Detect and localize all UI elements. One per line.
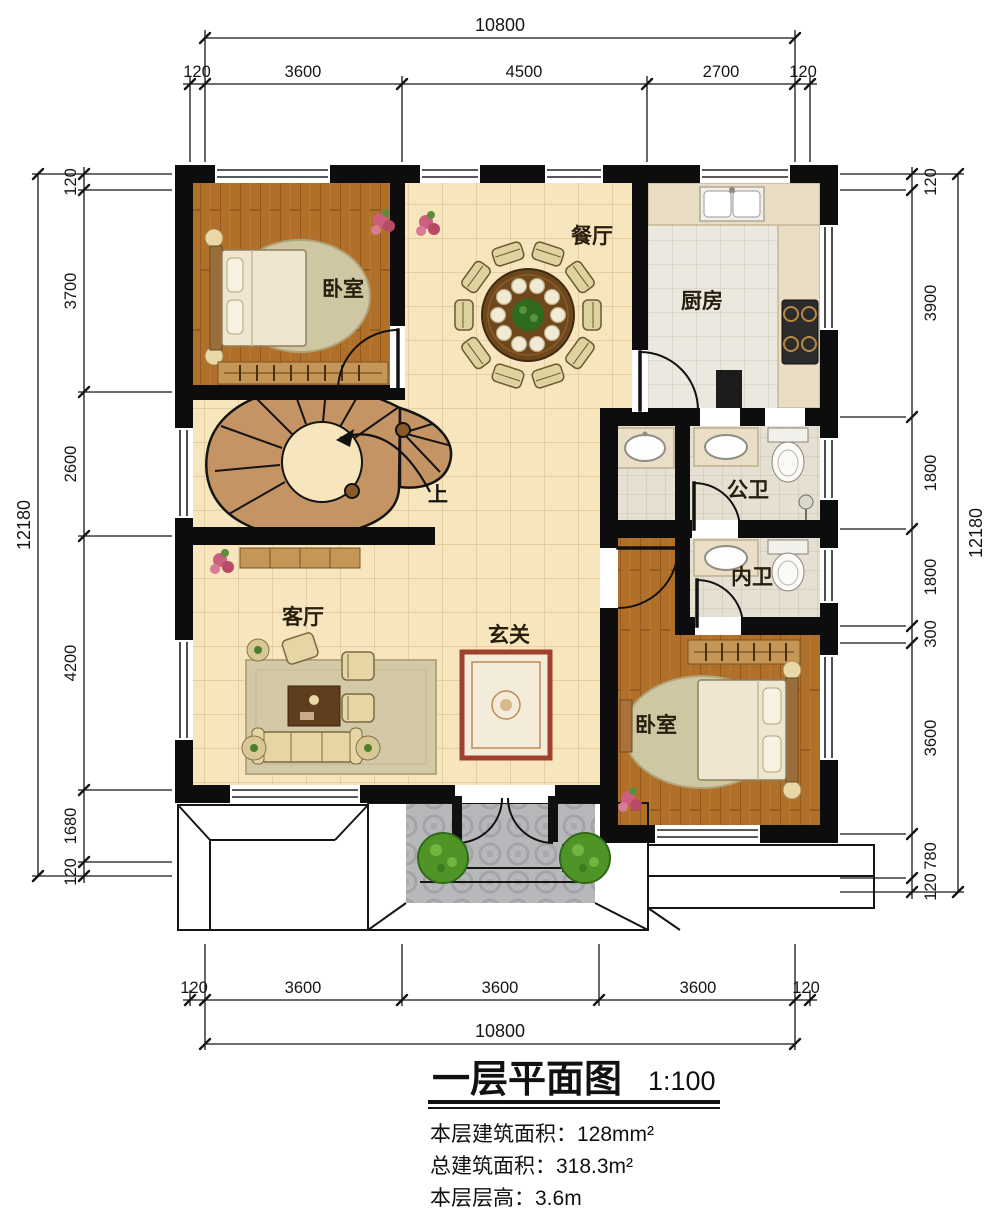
room-label-kitchen: 厨房	[681, 289, 723, 313]
bush-icon	[560, 833, 610, 883]
pillow	[763, 736, 781, 772]
title-block: 一层平面图 1:100 本层建筑面积：128mm² 总建筑面积：318.3m² …	[428, 1059, 720, 1210]
title-underline-thick	[428, 1100, 720, 1104]
room-label-foyer: 玄关	[488, 623, 530, 647]
dimension-bottom: 120 3600 3600 3600 120 10800	[180, 944, 820, 1050]
left-terrace-lines	[178, 805, 368, 930]
room-label-dining: 餐厅	[571, 224, 613, 248]
pillow	[227, 300, 243, 334]
dim-left-seg-3: 4200	[62, 645, 80, 682]
dim-right-seg-7: 120	[922, 873, 940, 901]
window-icon	[820, 548, 838, 603]
wardrobe-icon	[688, 640, 800, 664]
porch-step-diagonals	[368, 903, 648, 930]
room-label-bath-private: 内卫	[731, 565, 773, 589]
stove-icon	[782, 300, 818, 364]
dim-right-total: 12180	[966, 508, 986, 558]
dim-bottom-seg-4: 120	[792, 979, 820, 997]
room-label-bedroom-br: 卧室	[635, 713, 677, 737]
bed-icon	[698, 661, 801, 799]
wall-stair-south	[175, 527, 435, 545]
sofa-icon	[252, 728, 362, 764]
dim-bottom-seg-2: 3600	[482, 979, 519, 997]
dim-left-seg-1: 3700	[62, 273, 80, 310]
window-icon	[545, 165, 603, 183]
dim-top-seg-3: 2700	[703, 63, 740, 81]
dim-top-seg-0: 120	[183, 63, 211, 81]
extension-lines	[190, 30, 810, 162]
info-total-area: 总建筑面积：318.3m²	[430, 1155, 633, 1178]
sink-icon	[694, 428, 758, 466]
wash-basin-icon	[616, 428, 674, 468]
wardrobe-icon	[218, 362, 388, 384]
dim-bottom-seg-1: 3600	[285, 979, 322, 997]
info-floor-height: 本层层高：3.6m	[430, 1187, 582, 1210]
lamp-icon	[205, 229, 223, 247]
dimension-left: 120 3700 2600 4200 1680 120 12180	[14, 167, 172, 886]
console-cabinet	[240, 548, 360, 568]
dim-left-seg-5: 120	[62, 858, 80, 886]
room-label-bath-public: 公卫	[727, 479, 769, 502]
kitchen-appliance	[716, 370, 742, 408]
dim-right-seg-4: 300	[922, 620, 940, 648]
dim-left-seg-2: 2600	[62, 446, 80, 483]
left-terrace-outline	[178, 805, 368, 930]
bed-icon	[205, 229, 306, 365]
centerpiece-plant-icon	[512, 299, 544, 331]
title-underline-thin	[428, 1107, 720, 1109]
drawing-title: 一层平面图	[432, 1059, 622, 1101]
room-label-living: 客厅	[282, 605, 324, 629]
dim-right-seg-2: 1800	[922, 455, 940, 492]
lamp-icon	[783, 781, 801, 799]
tv-cabinet	[620, 700, 632, 752]
wall-wash-bath-divider	[675, 426, 690, 520]
rug-icon	[462, 652, 550, 758]
dim-right-seg-6: 780	[922, 842, 940, 870]
headboard	[786, 678, 798, 782]
floor-plan-page: 卧室 餐厅 厨房 公卫 内卫 客厅 玄关 卧室 上 10800 120 3600…	[0, 0, 1000, 1219]
sink-icon	[700, 187, 764, 221]
room-label-bedroom-tl: 卧室	[322, 277, 364, 301]
dimension-top: 10800 120 3600 4500 2700 120	[183, 15, 817, 162]
info-floor-area: 本层建筑面积：128mm²	[430, 1123, 654, 1146]
dim-right-seg-1: 3900	[922, 285, 940, 322]
dim-bottom-total: 10800	[475, 1021, 525, 1041]
dim-top-seg-4: 120	[789, 63, 817, 81]
window-icon	[820, 655, 838, 760]
drawing-scale: 1:100	[648, 1066, 716, 1096]
dim-top-seg-1: 3600	[285, 63, 322, 81]
extension-lines	[840, 174, 964, 892]
dim-right-seg-0: 120	[922, 168, 940, 196]
dim-top-total: 10800	[475, 15, 525, 35]
headboard	[210, 246, 222, 350]
pillow	[227, 258, 243, 292]
dim-top-seg-2: 4500	[506, 63, 543, 81]
window-icon	[820, 438, 838, 500]
lamp-icon	[783, 661, 801, 679]
armchair-icon	[342, 652, 374, 680]
stair-up-label: 上	[428, 483, 448, 506]
extension-lines	[32, 174, 172, 876]
dimension-right: 120 3900 1800 1800 300 3600 780 120 1218…	[840, 167, 986, 901]
window-icon	[655, 825, 760, 843]
dim-bottom-seg-3: 3600	[680, 979, 717, 997]
dim-left-seg-0: 120	[62, 168, 80, 196]
window-icon	[175, 428, 193, 518]
window-icon	[700, 165, 790, 183]
dim-left-seg-4: 1680	[62, 808, 80, 845]
window-icon	[175, 640, 193, 740]
window-icon	[230, 785, 360, 803]
dim-right-seg-5: 3600	[922, 720, 940, 757]
pillow	[763, 688, 781, 724]
wall-spine	[600, 426, 618, 825]
right-terrace-lines	[648, 876, 874, 930]
armchair-icon	[342, 694, 374, 722]
wall-bedroom-tl-south	[175, 385, 405, 400]
dim-left-total: 12180	[14, 500, 34, 550]
floor-plan-canvas: 卧室 餐厅 厨房 公卫 内卫 客厅 玄关 卧室 上 10800 120 3600…	[0, 0, 1000, 1219]
window-icon	[420, 165, 480, 183]
window-icon	[820, 225, 838, 330]
bush-icon	[418, 833, 468, 883]
dim-bottom-seg-0: 120	[180, 979, 208, 997]
dim-right-seg-3: 1800	[922, 559, 940, 596]
window-icon	[215, 165, 330, 183]
